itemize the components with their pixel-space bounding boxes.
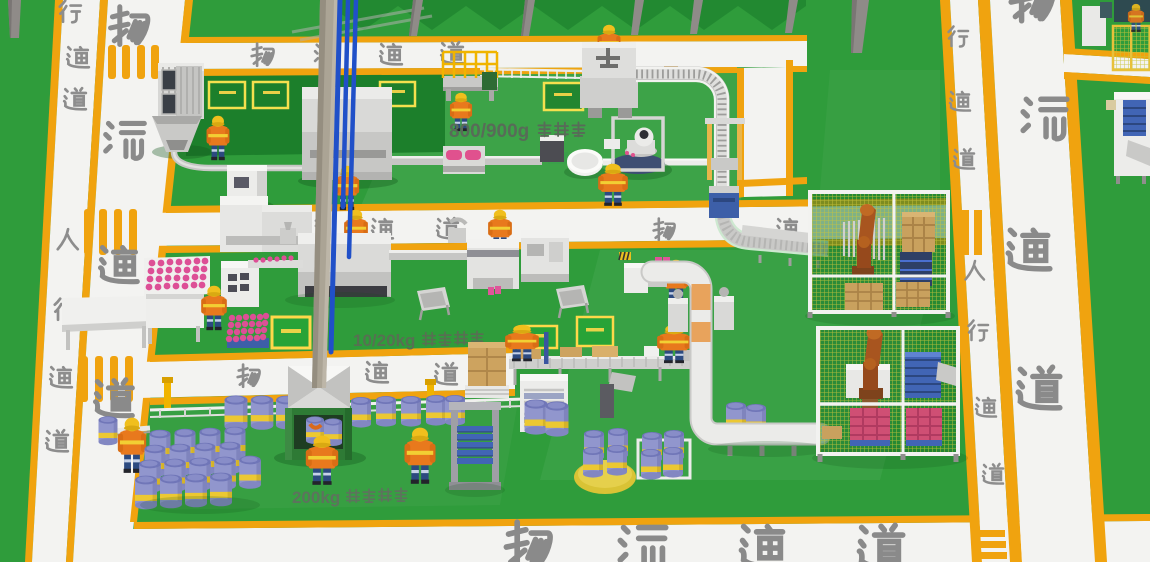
- svg-text:200kg: 200kg: [292, 488, 340, 507]
- svg-text:800/900g: 800/900g: [449, 121, 529, 142]
- svg-text:10/20kg: 10/20kg: [353, 331, 415, 350]
